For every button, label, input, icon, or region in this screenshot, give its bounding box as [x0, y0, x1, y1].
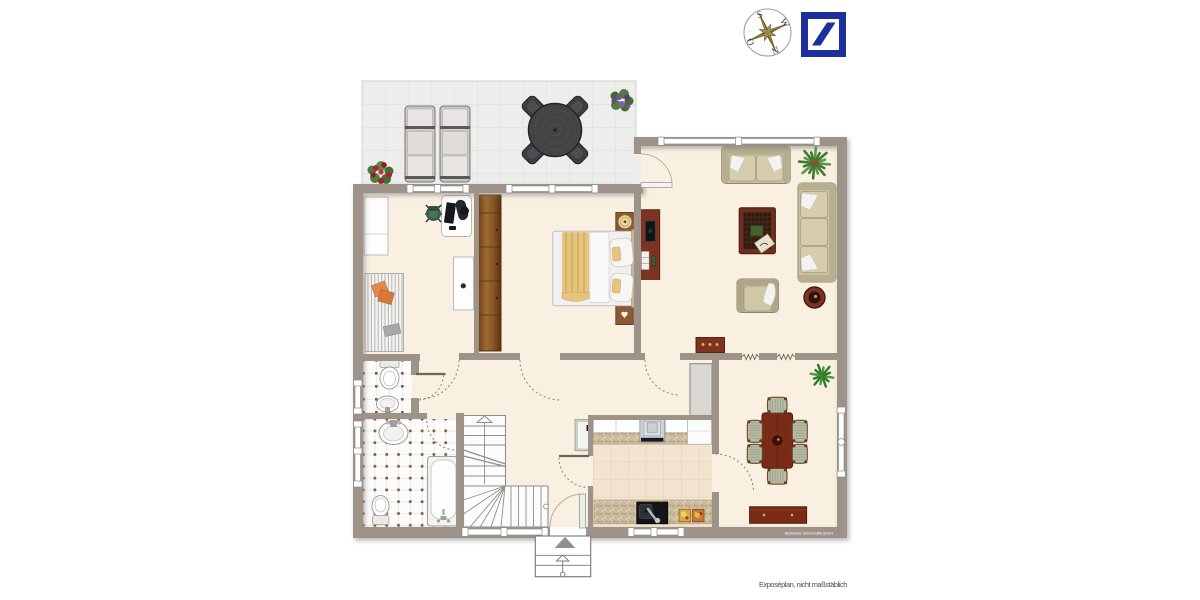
- svg-text:Illustration: ImmoGrafik GmbH: Illustration: ImmoGrafik GmbH: [785, 532, 834, 536]
- svg-text:Exposéplan, nicht maßstäblich: Exposéplan, nicht maßstäblich: [759, 580, 847, 589]
